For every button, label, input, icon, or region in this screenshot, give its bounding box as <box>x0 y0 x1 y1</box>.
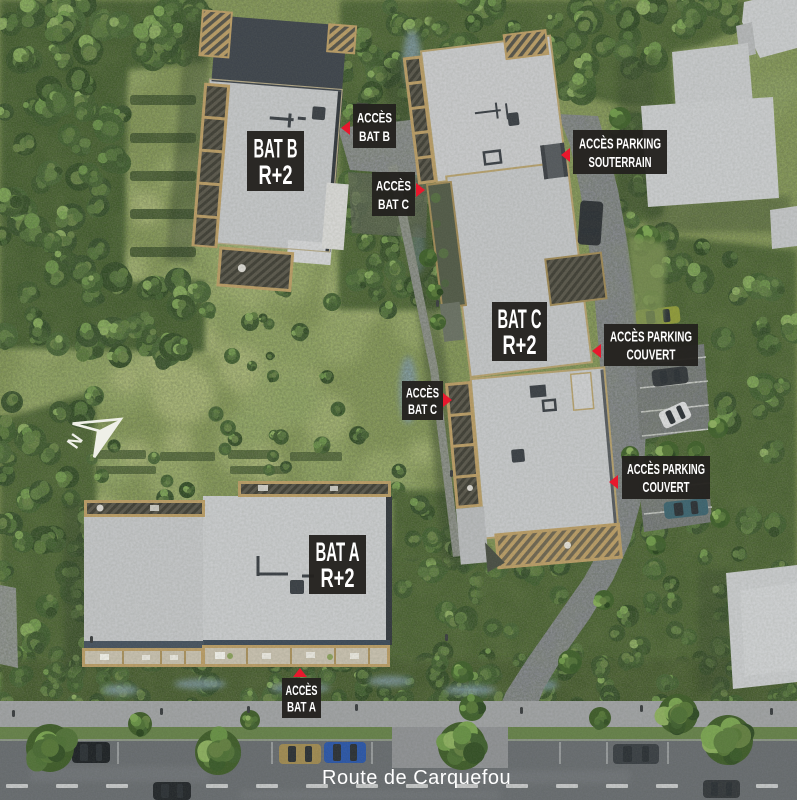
svg-text:COUVERT: COUVERT <box>627 346 676 363</box>
svg-text:ACCÈS PARKING: ACCÈS PARKING <box>579 135 661 152</box>
svg-text:SOUTERRAIN: SOUTERRAIN <box>589 154 652 171</box>
svg-text:ACCÈS PARKING: ACCÈS PARKING <box>610 329 692 346</box>
svg-text:ACCÈS: ACCÈS <box>357 109 392 125</box>
svg-text:BAT A: BAT A <box>287 699 316 715</box>
svg-text:ACCÈS: ACCÈS <box>406 384 439 400</box>
svg-text:R+2: R+2 <box>503 330 537 360</box>
svg-text:R+2: R+2 <box>259 160 293 190</box>
svg-text:BAT C: BAT C <box>408 401 437 417</box>
svg-text:ACCÈS PARKING: ACCÈS PARKING <box>627 461 705 478</box>
svg-text:ACCÈS: ACCÈS <box>376 177 411 193</box>
svg-text:BAT B: BAT B <box>359 128 390 144</box>
svg-text:COUVERT: COUVERT <box>643 479 690 496</box>
svg-text:ACCÈS: ACCÈS <box>286 682 318 698</box>
svg-text:R+2: R+2 <box>321 563 355 593</box>
svg-text:Route de Carquefou: Route de Carquefou <box>322 767 511 789</box>
svg-text:BAT C: BAT C <box>378 196 409 212</box>
